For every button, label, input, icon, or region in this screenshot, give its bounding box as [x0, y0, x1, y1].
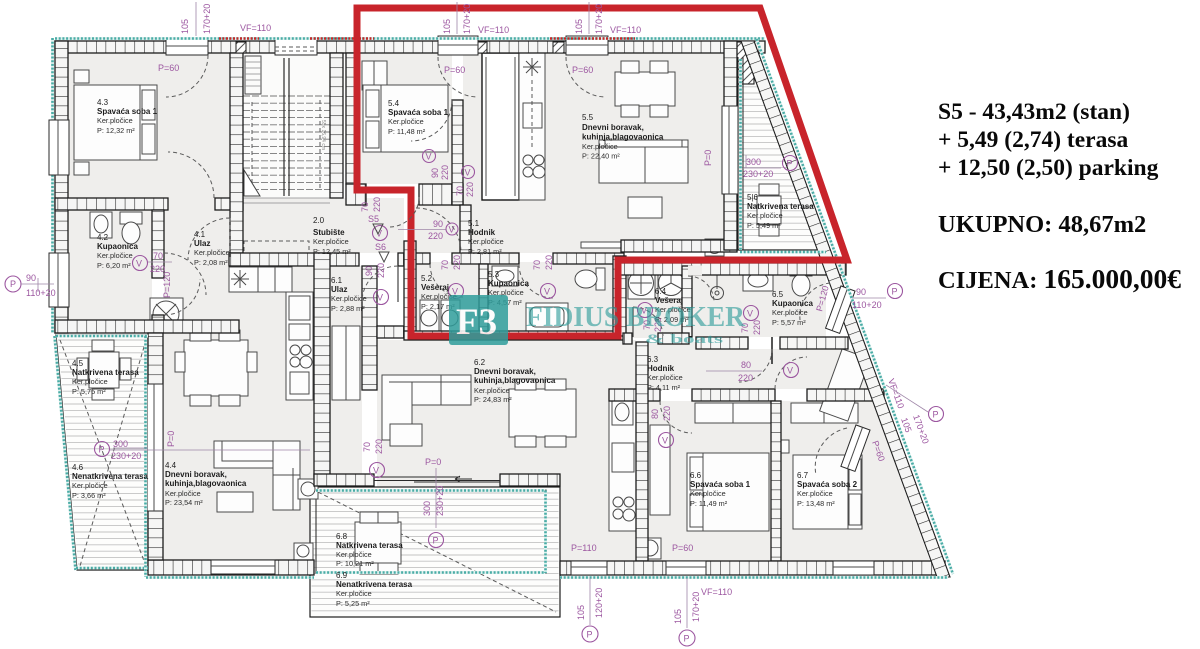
svg-text:Ker.pločice: Ker.pločice	[772, 308, 808, 317]
svg-text:P: P	[892, 287, 898, 297]
svg-text:P: 13,48 m²: P: 13,48 m²	[797, 499, 835, 508]
svg-text:Hodnik: Hodnik	[468, 228, 496, 237]
svg-text:P=60: P=60	[444, 65, 465, 75]
svg-text:Ker.pločice: Ker.pločice	[72, 481, 108, 490]
svg-text:Ker.pločice: Ker.pločice	[747, 211, 783, 220]
svg-text:80: 80	[741, 360, 751, 370]
svg-text:Ker.pločice: Ker.pločice	[331, 294, 367, 303]
svg-text:220: 220	[738, 373, 753, 383]
svg-text:120+20: 120+20	[594, 588, 604, 618]
svg-text:P=120: P=120	[162, 272, 172, 298]
svg-text:170+20: 170+20	[462, 4, 472, 34]
svg-text:& boats: & boats	[645, 331, 723, 346]
svg-text:6.4: 6.4	[655, 287, 667, 296]
svg-text:6.6: 6.6	[690, 471, 702, 480]
svg-text:300: 300	[746, 157, 761, 167]
svg-text:kuhinja,blagovaonica: kuhinja,blagovaonica	[474, 376, 556, 385]
svg-text:Dnevni boravak,: Dnevni boravak,	[582, 123, 644, 132]
svg-text:Natkrivena terasa: Natkrivena terasa	[72, 368, 139, 377]
svg-text:VF=110: VF=110	[478, 25, 509, 35]
svg-text:220: 220	[376, 263, 386, 278]
svg-text:Ker.pločice: Ker.pločice	[690, 489, 726, 498]
svg-text:Ker.pločice: Ker.pločice	[165, 489, 201, 498]
svg-text:Ker.pločice: Ker.pločice	[797, 489, 833, 498]
svg-text:P: P	[587, 630, 593, 640]
svg-text:P: 6,20 m²: P: 6,20 m²	[97, 261, 131, 270]
svg-text:Ker.pločice: Ker.pločice	[336, 589, 372, 598]
svg-text:90: 90	[430, 168, 440, 178]
svg-text:+ 12,50 (2,50) parking: + 12,50 (2,50) parking	[938, 155, 1159, 181]
svg-text:220: 220	[428, 231, 443, 241]
svg-text:P: 4,11 m²: P: 4,11 m²	[647, 383, 681, 392]
svg-text:Dnevni boravak,: Dnevni boravak,	[165, 470, 227, 479]
svg-text:Spavaća soba 2: Spavaća soba 2	[797, 480, 858, 489]
svg-text:P: 3,66 m²: P: 3,66 m²	[72, 491, 106, 500]
svg-text:P: 2,88 m²: P: 2,88 m²	[331, 304, 365, 313]
svg-text:70: 70	[153, 251, 163, 261]
svg-text:P: 24,83 m²: P: 24,83 m²	[474, 395, 512, 404]
svg-text:5.1: 5.1	[468, 219, 480, 228]
svg-text:Nenatkrivena terasa: Nenatkrivena terasa	[72, 472, 149, 481]
svg-text:VF=110: VF=110	[610, 25, 641, 35]
svg-text:S5: S5	[368, 214, 379, 224]
svg-text:V: V	[377, 293, 383, 303]
svg-text:110+20: 110+20	[852, 300, 882, 310]
svg-text:P: 12,32 m²: P: 12,32 m²	[97, 126, 135, 135]
svg-text:4.5: 4.5	[72, 359, 84, 368]
svg-text:90: 90	[433, 219, 443, 229]
svg-text:5.2: 5.2	[421, 274, 433, 283]
svg-text:Nenatkrivena terasa: Nenatkrivena terasa	[336, 580, 413, 589]
svg-text:P: P	[684, 634, 690, 644]
svg-text:220: 220	[752, 320, 762, 335]
svg-text:6.3: 6.3	[647, 355, 659, 364]
svg-text:V: V	[662, 436, 668, 446]
svg-text:P: 12,45 m²: P: 12,45 m²	[313, 247, 351, 256]
svg-text:P: P	[933, 410, 939, 420]
svg-text:300: 300	[422, 501, 432, 516]
svg-text:105: 105	[180, 19, 190, 34]
svg-text:P=60: P=60	[158, 63, 179, 73]
svg-text:70: 70	[532, 260, 542, 270]
svg-text:170+20: 170+20	[202, 4, 212, 34]
svg-text:V: V	[373, 466, 379, 476]
svg-text:V: V	[465, 168, 471, 178]
svg-text:6.7: 6.7	[797, 471, 809, 480]
svg-text:kuhinja,blagovaonica: kuhinja,blagovaonica	[165, 479, 247, 488]
svg-text:170+20: 170+20	[594, 4, 604, 34]
svg-text:6.1: 6.1	[331, 276, 343, 285]
svg-text:P=0: P=0	[703, 150, 713, 166]
svg-text:Ker.pločice: Ker.pločice	[72, 377, 108, 386]
svg-text:Ker.pločice: Ker.pločice	[336, 550, 372, 559]
svg-text:P=0: P=0	[425, 457, 441, 467]
svg-text:P=0: P=0	[166, 431, 176, 447]
svg-text:4.6: 4.6	[72, 463, 84, 472]
svg-text:Ker.pločice: Ker.pločice	[474, 386, 510, 395]
svg-text:V: V	[426, 152, 432, 162]
svg-text:Ker.pločice: Ker.pločice	[582, 142, 618, 151]
svg-text:P: P	[10, 279, 16, 289]
svg-text:4.1: 4.1	[194, 230, 206, 239]
svg-text:Ker.pločice: Ker.pločice	[468, 237, 504, 246]
svg-text:90: 90	[364, 266, 374, 276]
svg-text:Kupaonica: Kupaonica	[488, 279, 529, 288]
svg-text:5|6: 5|6	[747, 193, 759, 202]
svg-text:P: 2,08 m²: P: 2,08 m²	[194, 258, 228, 267]
svg-text:P: P	[433, 536, 439, 546]
svg-text:220: 220	[150, 264, 165, 274]
svg-text:Ker.pločice: Ker.pločice	[388, 117, 424, 126]
svg-text:Spavaća soba 1: Spavaća soba 1	[97, 107, 158, 116]
svg-text:V: V	[544, 287, 550, 297]
svg-text:Ulaz: Ulaz	[194, 239, 210, 248]
svg-text:V: V	[787, 366, 793, 376]
svg-text:220: 220	[465, 182, 475, 197]
svg-text:220: 220	[544, 255, 554, 270]
svg-text:V: V	[449, 225, 455, 235]
svg-text:5.4: 5.4	[388, 99, 400, 108]
svg-text:P: 10,21 m²: P: 10,21 m²	[336, 559, 374, 568]
svg-text:Natkrivena terasa: Natkrivena terasa	[747, 202, 814, 211]
svg-text:Stubište: Stubište	[313, 228, 345, 237]
svg-text:UKUPNO: 48,67m2: UKUPNO: 48,67m2	[938, 211, 1146, 238]
svg-text:Ulaz: Ulaz	[331, 285, 347, 294]
svg-text:Spavaća soba 1: Spavaća soba 1	[388, 108, 449, 117]
svg-text:F3: F3	[456, 302, 497, 343]
svg-text:80: 80	[650, 409, 660, 419]
svg-text:P: 5,75 m²: P: 5,75 m²	[72, 387, 106, 396]
svg-text:FIDIUS BROKER: FIDIUS BROKER	[526, 302, 746, 333]
svg-text:+ 5,49 (2,74) terasa: + 5,49 (2,74) terasa	[938, 127, 1128, 153]
svg-text:2.0: 2.0	[313, 216, 325, 225]
svg-text:P: 22,40 m²: P: 22,40 m²	[582, 152, 620, 161]
svg-text:6.9: 6.9	[336, 571, 348, 580]
svg-text:6.2: 6.2	[474, 358, 486, 367]
svg-text:220: 220	[372, 197, 382, 212]
svg-text:105: 105	[442, 19, 452, 34]
svg-text:Ker.pločice: Ker.pločice	[647, 373, 683, 382]
svg-text:230+20: 230+20	[111, 451, 141, 461]
svg-text:P=60: P=60	[572, 65, 593, 75]
svg-text:P: 11,49 m²: P: 11,49 m²	[690, 499, 728, 508]
svg-text:P: 5,57 m²: P: 5,57 m²	[772, 318, 806, 327]
svg-text:170+20: 170+20	[691, 592, 701, 622]
svg-text:Ker.pločice: Ker.pločice	[97, 116, 133, 125]
svg-text:230+20: 230+20	[435, 486, 445, 516]
svg-text:P: 5,49 m²: P: 5,49 m²	[747, 221, 781, 230]
svg-text:P: 23,54 m²: P: 23,54 m²	[165, 498, 203, 507]
svg-text:P: P	[787, 159, 793, 169]
svg-text:Kupaonica: Kupaonica	[772, 299, 813, 308]
svg-text:105: 105	[574, 19, 584, 34]
svg-text:kuhinja,blagovaonica: kuhinja,blagovaonica	[582, 133, 664, 142]
svg-text:Vešeraj: Vešeraj	[421, 283, 449, 292]
svg-text:110+20: 110+20	[26, 288, 56, 298]
svg-text:CIJENA: 165.000,00€: CIJENA: 165.000,00€	[938, 263, 1181, 294]
svg-text:55x 16,94 cm: 55x 16,94 cm	[320, 120, 326, 150]
svg-text:P: 11,48 m²: P: 11,48 m²	[388, 127, 426, 136]
svg-text:Spavaća soba 1: Spavaća soba 1	[690, 480, 751, 489]
svg-text:4.4: 4.4	[165, 461, 177, 470]
svg-text:4.2: 4.2	[97, 233, 109, 242]
svg-text:Ker.pločice: Ker.pločice	[194, 248, 230, 257]
svg-text:90: 90	[856, 287, 866, 297]
svg-text:6.8: 6.8	[336, 532, 348, 541]
svg-text:230+20: 230+20	[743, 169, 773, 179]
svg-text:Natkrivena terasa: Natkrivena terasa	[336, 541, 403, 550]
svg-text:300: 300	[113, 439, 128, 449]
svg-text:105: 105	[673, 609, 683, 624]
svg-text:220: 220	[662, 406, 672, 421]
svg-text:70: 70	[455, 186, 465, 196]
svg-text:P=110: P=110	[571, 543, 597, 553]
svg-text:4.3: 4.3	[97, 98, 109, 107]
svg-text:S6: S6	[375, 242, 386, 252]
svg-text:70: 70	[440, 260, 450, 270]
svg-text:5.3: 5.3	[488, 270, 500, 279]
svg-text:P: 2,81 m²: P: 2,81 m²	[468, 247, 502, 256]
svg-text:70: 70	[360, 202, 370, 212]
svg-text:V: V	[136, 259, 142, 269]
svg-text:S5 - 43,43m2 (stan): S5 - 43,43m2 (stan)	[938, 99, 1130, 125]
svg-text:P: 5,25 m²: P: 5,25 m²	[336, 599, 370, 608]
svg-text:105: 105	[576, 605, 586, 620]
svg-text:90: 90	[26, 273, 36, 283]
svg-text:Hodnik: Hodnik	[647, 364, 675, 373]
svg-text:220: 220	[452, 255, 462, 270]
svg-text:Ker.pločice: Ker.pločice	[97, 251, 133, 260]
svg-text:P=60: P=60	[672, 543, 693, 553]
svg-text:220: 220	[440, 165, 450, 180]
svg-text:220: 220	[374, 439, 384, 454]
svg-text:Kupaonica: Kupaonica	[97, 242, 138, 251]
svg-text:VF=110: VF=110	[240, 23, 271, 33]
svg-text:Dnevni boravak,: Dnevni boravak,	[474, 367, 536, 376]
svg-text:70: 70	[362, 442, 372, 452]
svg-text:VF=110: VF=110	[701, 587, 732, 597]
svg-text:V: V	[747, 309, 753, 319]
svg-text:P: P	[99, 445, 105, 455]
svg-text:6.5: 6.5	[772, 290, 784, 299]
svg-text:5.5: 5.5	[582, 113, 594, 122]
svg-text:Ker.pločice: Ker.pločice	[313, 237, 349, 246]
svg-text:V: V	[376, 229, 382, 239]
